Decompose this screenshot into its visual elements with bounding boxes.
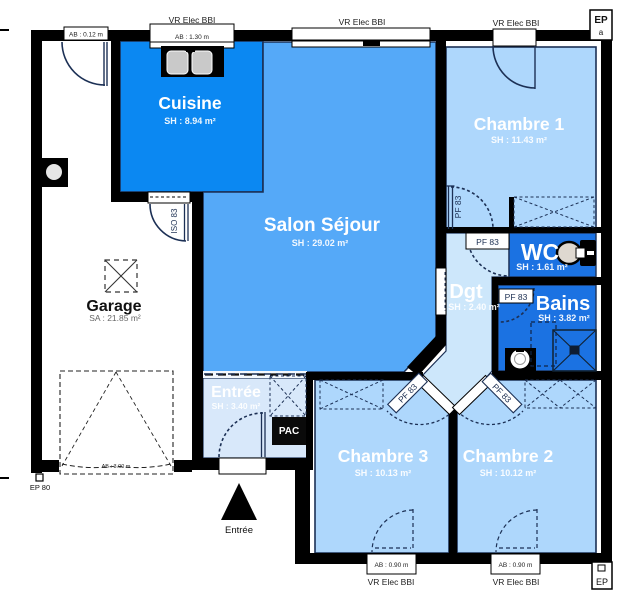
svg-text:ISO 83: ISO 83 — [170, 208, 179, 233]
svg-text:Dgt: Dgt — [449, 281, 483, 303]
svg-text:PAC: PAC — [279, 426, 299, 437]
svg-text:PF 83: PF 83 — [505, 292, 528, 302]
svg-text:VR Elec BBI: VR Elec BBI — [368, 577, 415, 587]
svg-text:PF 83: PF 83 — [453, 195, 463, 218]
svg-text:PF 83: PF 83 — [476, 237, 499, 247]
svg-text:Chambre 3: Chambre 3 — [338, 446, 429, 466]
svg-text:AB : 0.90 m: AB : 0.90 m — [499, 562, 533, 569]
svg-text:SH : 11.43 m²: SH : 11.43 m² — [491, 135, 547, 145]
svg-text:Cuisine: Cuisine — [158, 93, 221, 113]
svg-text:SH : 10.13 m²: SH : 10.13 m² — [355, 468, 412, 478]
svg-text:AB : 0.90 m: AB : 0.90 m — [375, 562, 409, 569]
svg-text:VR Elec BBI: VR Elec BBI — [493, 577, 540, 587]
svg-text:SH : 10.12 m²: SH : 10.12 m² — [480, 468, 537, 478]
svg-text:AB : 3.00 m: AB : 3.00 m — [102, 464, 131, 470]
svg-text:EP: EP — [594, 15, 608, 26]
svg-text:VR Elec BBI: VR Elec BBI — [493, 18, 540, 28]
svg-text:SA : 21.85 m²: SA : 21.85 m² — [89, 313, 141, 323]
svg-text:SH : 3.40 m²: SH : 3.40 m² — [212, 401, 261, 411]
svg-text:Entrée: Entrée — [211, 384, 261, 401]
svg-text:SH : 3.82 m²: SH : 3.82 m² — [538, 313, 590, 323]
svg-text:Chambre 1: Chambre 1 — [474, 114, 565, 134]
svg-text:EP: EP — [596, 577, 608, 587]
svg-text:VR Elec BBI: VR Elec BBI — [169, 15, 216, 25]
svg-text:VR Elec BBI: VR Elec BBI — [339, 17, 386, 27]
svg-text:Entrée: Entrée — [225, 525, 253, 536]
svg-text:AB : 0.12 m: AB : 0.12 m — [69, 32, 103, 39]
svg-text:SH : 2.40 m²: SH : 2.40 m² — [448, 302, 500, 312]
svg-text:a: a — [599, 28, 604, 37]
svg-text:SH : 29.02 m²: SH : 29.02 m² — [292, 238, 349, 248]
svg-text:Chambre 2: Chambre 2 — [463, 446, 554, 466]
svg-text:SH : 8.94 m²: SH : 8.94 m² — [164, 116, 216, 126]
svg-text:AB : 1.30 m: AB : 1.30 m — [175, 34, 209, 41]
svg-text:EP 80: EP 80 — [30, 483, 50, 492]
svg-text:Bains: Bains — [536, 293, 590, 315]
svg-text:Salon Séjour: Salon Séjour — [264, 215, 381, 236]
svg-text:SH : 1.61 m²: SH : 1.61 m² — [516, 262, 568, 272]
